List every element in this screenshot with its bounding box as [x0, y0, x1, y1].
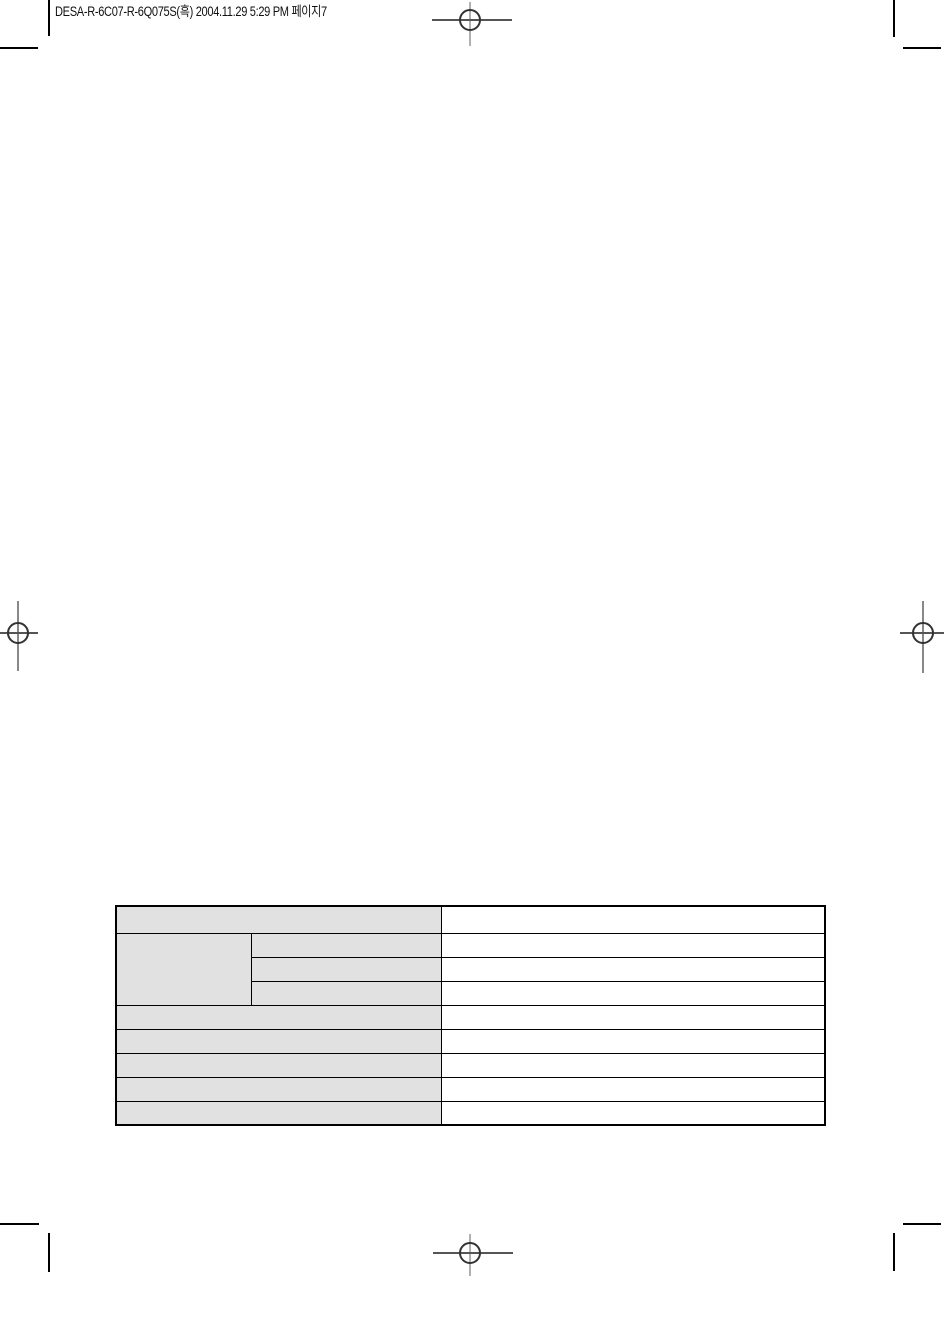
- table-label-cell: [251, 957, 441, 981]
- table-value-cell: [441, 933, 825, 957]
- table-value-cell: [441, 957, 825, 981]
- crop-mark-bottom-left-horizontal: [0, 1223, 39, 1225]
- table-label-cell: [116, 1053, 441, 1077]
- registration-circle-icon: [459, 1242, 481, 1264]
- table-label-cell: [116, 906, 441, 933]
- crop-mark-top-right-horizontal: [903, 47, 941, 49]
- table-group-cell: [116, 933, 251, 1005]
- spec-table: [115, 905, 826, 1126]
- table-value-cell: [441, 906, 825, 933]
- table-row: [116, 1077, 825, 1101]
- table-row: [116, 933, 825, 957]
- registration-circle-icon: [459, 9, 481, 31]
- crop-mark-top-left-horizontal: [0, 47, 38, 49]
- table-value-cell: [441, 1077, 825, 1101]
- registration-circle-icon: [7, 622, 29, 644]
- table-value-cell: [441, 981, 825, 1005]
- table-row: [116, 1005, 825, 1029]
- crop-mark-top-left-vertical: [48, 0, 50, 36]
- registration-circle-icon: [912, 622, 934, 644]
- table-label-cell: [116, 1077, 441, 1101]
- table-label-cell: [116, 1029, 441, 1053]
- print-job-header: DESA-R-6C07-R-6Q075S(흑) 2004.11.29 5:29 …: [55, 4, 327, 20]
- table-value-cell: [441, 1053, 825, 1077]
- table-row: [116, 1053, 825, 1077]
- crop-mark-bottom-right-horizontal: [903, 1223, 941, 1225]
- document-page: DESA-R-6C07-R-6Q075S(흑) 2004.11.29 5:29 …: [0, 0, 950, 1344]
- table-label-cell: [251, 981, 441, 1005]
- crop-mark-bottom-left-vertical: [48, 1233, 50, 1272]
- table-label-cell: [116, 1005, 441, 1029]
- table-label-cell: [251, 933, 441, 957]
- crop-mark-bottom-right-vertical: [893, 1233, 895, 1271]
- table-value-cell: [441, 1101, 825, 1125]
- table-row: [116, 906, 825, 933]
- table-row: [116, 1101, 825, 1125]
- table-label-cell: [116, 1101, 441, 1125]
- table-value-cell: [441, 1029, 825, 1053]
- table-value-cell: [441, 1005, 825, 1029]
- crop-mark-top-right-vertical: [893, 0, 895, 37]
- table-row: [116, 1029, 825, 1053]
